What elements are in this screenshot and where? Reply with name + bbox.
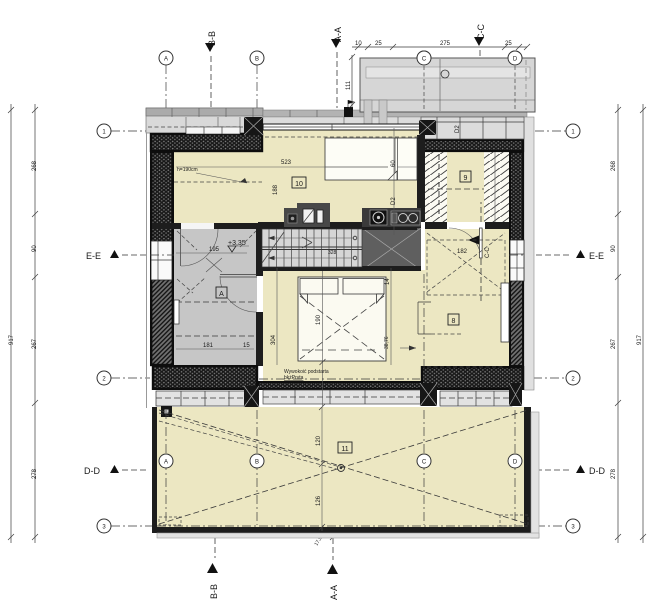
svg-text:B: B	[255, 460, 259, 466]
svg-text:A: A	[164, 460, 168, 466]
svg-text:B-B: B-B	[209, 584, 219, 599]
svg-text:917: 917	[9, 334, 15, 345]
svg-text:195: 195	[209, 247, 220, 253]
svg-text:328: 328	[328, 250, 337, 256]
svg-text:268: 268	[32, 160, 38, 171]
svg-text:bkżPrvta: bkżPrvta	[284, 375, 304, 381]
svg-text:11: 11	[341, 446, 348, 453]
svg-text:126: 126	[316, 495, 322, 506]
svg-text:120: 120	[316, 435, 322, 446]
svg-text:D2: D2	[455, 125, 461, 133]
svg-text:25: 25	[375, 41, 382, 47]
svg-text:D: D	[513, 57, 518, 63]
svg-text:188: 188	[273, 184, 279, 195]
svg-text:10: 10	[355, 41, 362, 47]
svg-text:267: 267	[611, 338, 617, 349]
svg-text:25: 25	[505, 41, 512, 47]
svg-text:304: 304	[271, 334, 277, 345]
svg-text:D-D: D-D	[589, 466, 605, 476]
svg-text:D-D: D-D	[84, 466, 100, 476]
svg-text:275: 275	[440, 41, 451, 47]
svg-text:h=190cm: h=190cm	[177, 167, 198, 173]
svg-text:15: 15	[243, 343, 250, 349]
svg-text:B: B	[255, 57, 259, 63]
svg-text:111: 111	[346, 80, 352, 90]
svg-text:278: 278	[611, 468, 617, 479]
svg-text:C: C	[422, 460, 427, 466]
svg-text:D: D	[513, 460, 518, 466]
svg-text:9: 9	[464, 175, 468, 182]
svg-text:14: 14	[385, 278, 391, 285]
svg-text:E-E: E-E	[86, 251, 101, 261]
svg-text:268: 268	[611, 160, 617, 171]
svg-text:E-E: E-E	[589, 251, 604, 261]
svg-text:A: A	[219, 291, 224, 298]
svg-text:182: 182	[457, 249, 468, 255]
svg-text:38,76: 38,76	[384, 336, 390, 349]
svg-text:10: 10	[295, 181, 303, 188]
svg-text:90: 90	[611, 245, 617, 252]
svg-text:8: 8	[452, 318, 456, 325]
svg-text:A: A	[164, 57, 168, 63]
svg-text:190: 190	[316, 314, 322, 325]
svg-text:523: 523	[281, 160, 292, 166]
svg-text:A-A: A-A	[329, 585, 339, 600]
svg-text:278: 278	[32, 468, 38, 479]
svg-text:C: C	[422, 57, 427, 63]
svg-text:181: 181	[203, 343, 214, 349]
svg-text:C-C: C-C	[485, 247, 491, 258]
svg-text:90: 90	[32, 245, 38, 252]
svg-text:917: 917	[637, 334, 643, 345]
svg-text:267: 267	[32, 338, 38, 349]
